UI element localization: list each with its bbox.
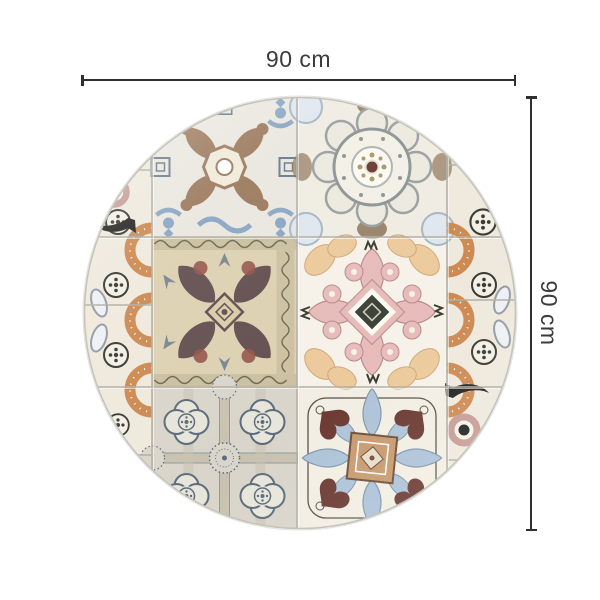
product-dimension-image: 90 cm 90 cm [0,0,600,600]
height-dimension-label: 90 cm [536,276,562,350]
height-tick-bottom [526,529,537,532]
rug-image [0,0,600,600]
height-dimension-line [530,97,532,530]
width-dimension-label: 90 cm [82,46,515,72]
width-tick-left [81,75,84,86]
width-tick-right [514,75,517,86]
width-dimension-line [82,79,515,81]
height-tick-top [526,96,537,99]
